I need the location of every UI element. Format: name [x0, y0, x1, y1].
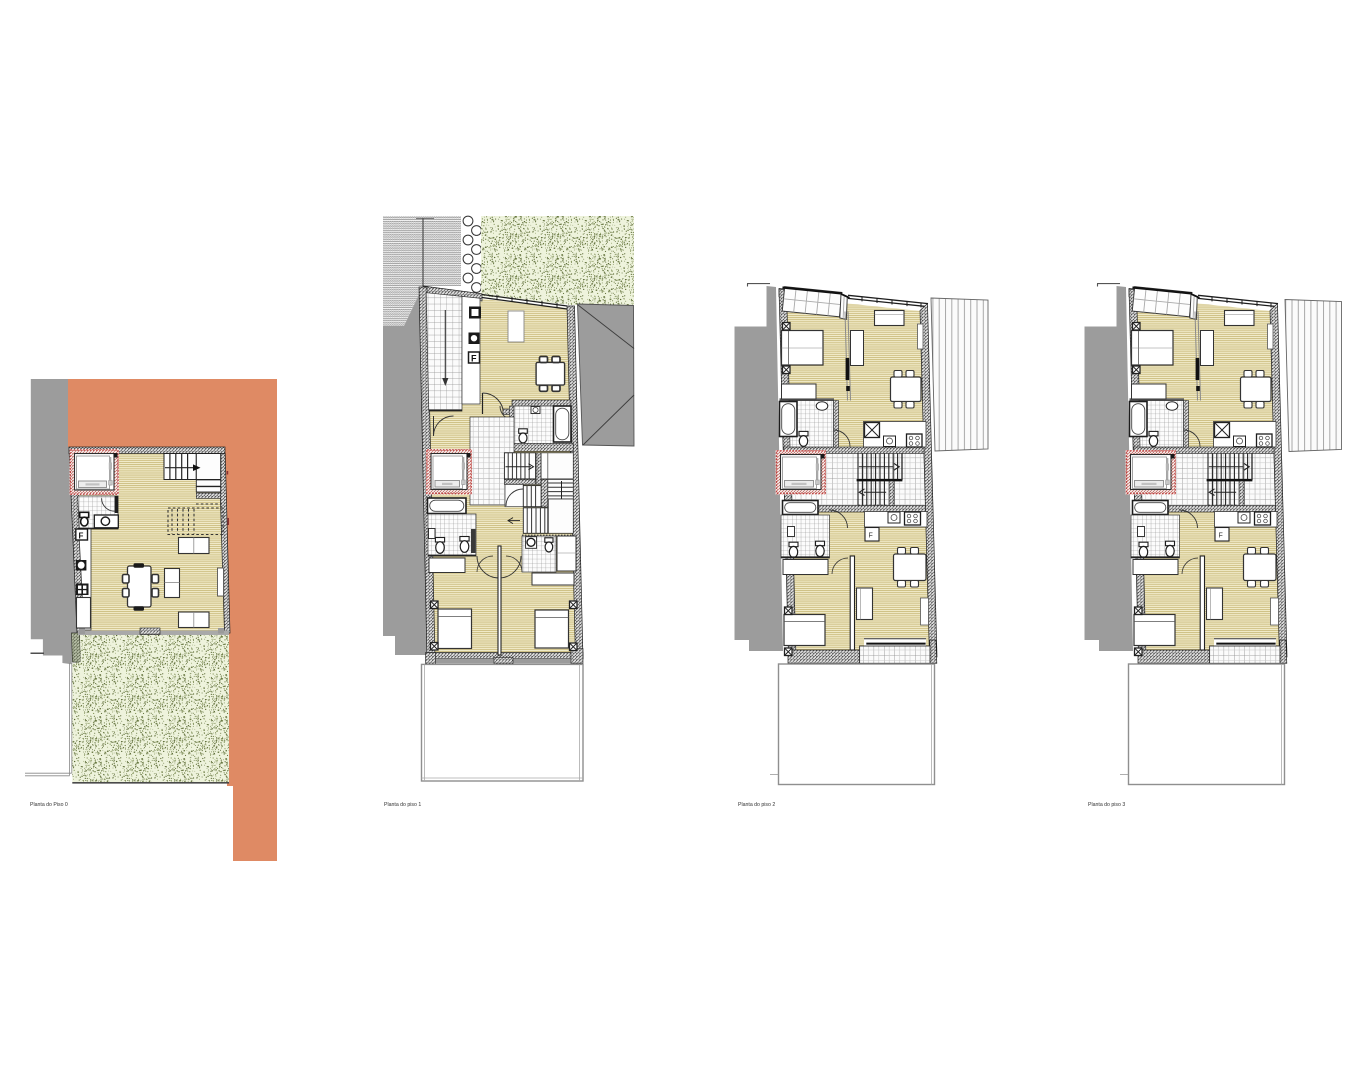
- svg-text:Planta do piso 2: Planta do piso 2: [738, 802, 775, 808]
- svg-text:F: F: [869, 533, 873, 540]
- svg-text:Planta do piso 3: Planta do piso 3: [1088, 802, 1125, 808]
- svg-text:Planta do Piso 0: Planta do Piso 0: [30, 802, 68, 808]
- svg-text:F: F: [79, 532, 84, 541]
- svg-text:F: F: [471, 354, 477, 364]
- svg-text:Planta do piso 1: Planta do piso 1: [384, 802, 421, 808]
